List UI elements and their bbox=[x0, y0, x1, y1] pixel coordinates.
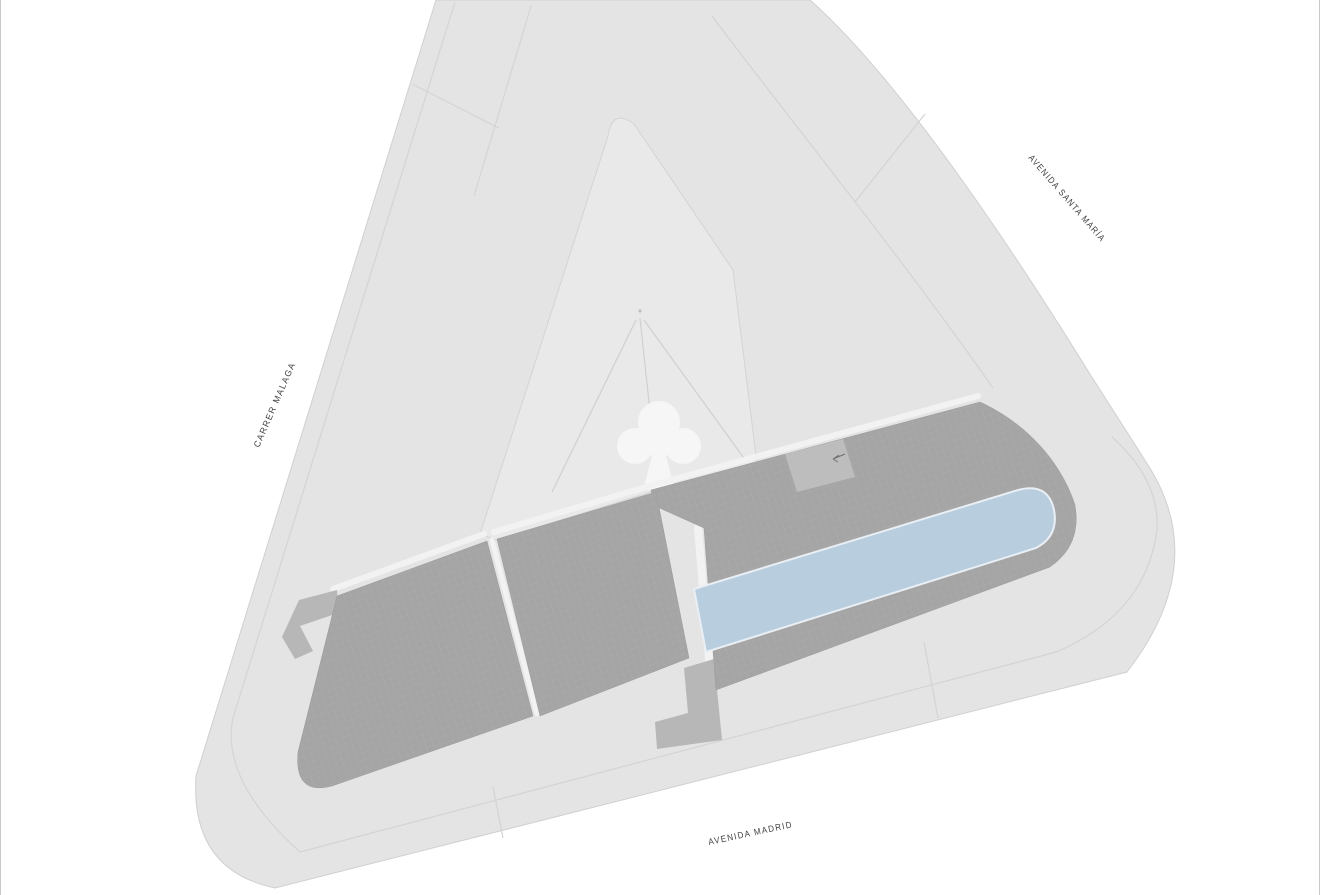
site-plan-canvas: AVENIDA SANTA MARÍA CARRER MALAGA AVENID… bbox=[0, 0, 1320, 895]
walkway-apex-marker bbox=[638, 309, 641, 312]
site-plan: AVENIDA SANTA MARÍA CARRER MALAGA AVENID… bbox=[0, 0, 1320, 895]
street-label-avenida-santa-maria: AVENIDA SANTA MARÍA bbox=[1026, 153, 1107, 244]
street-label-carrer-malaga: CARRER MALAGA bbox=[252, 360, 298, 448]
street-label-avenida-madrid: AVENIDA MADRID bbox=[707, 819, 793, 847]
